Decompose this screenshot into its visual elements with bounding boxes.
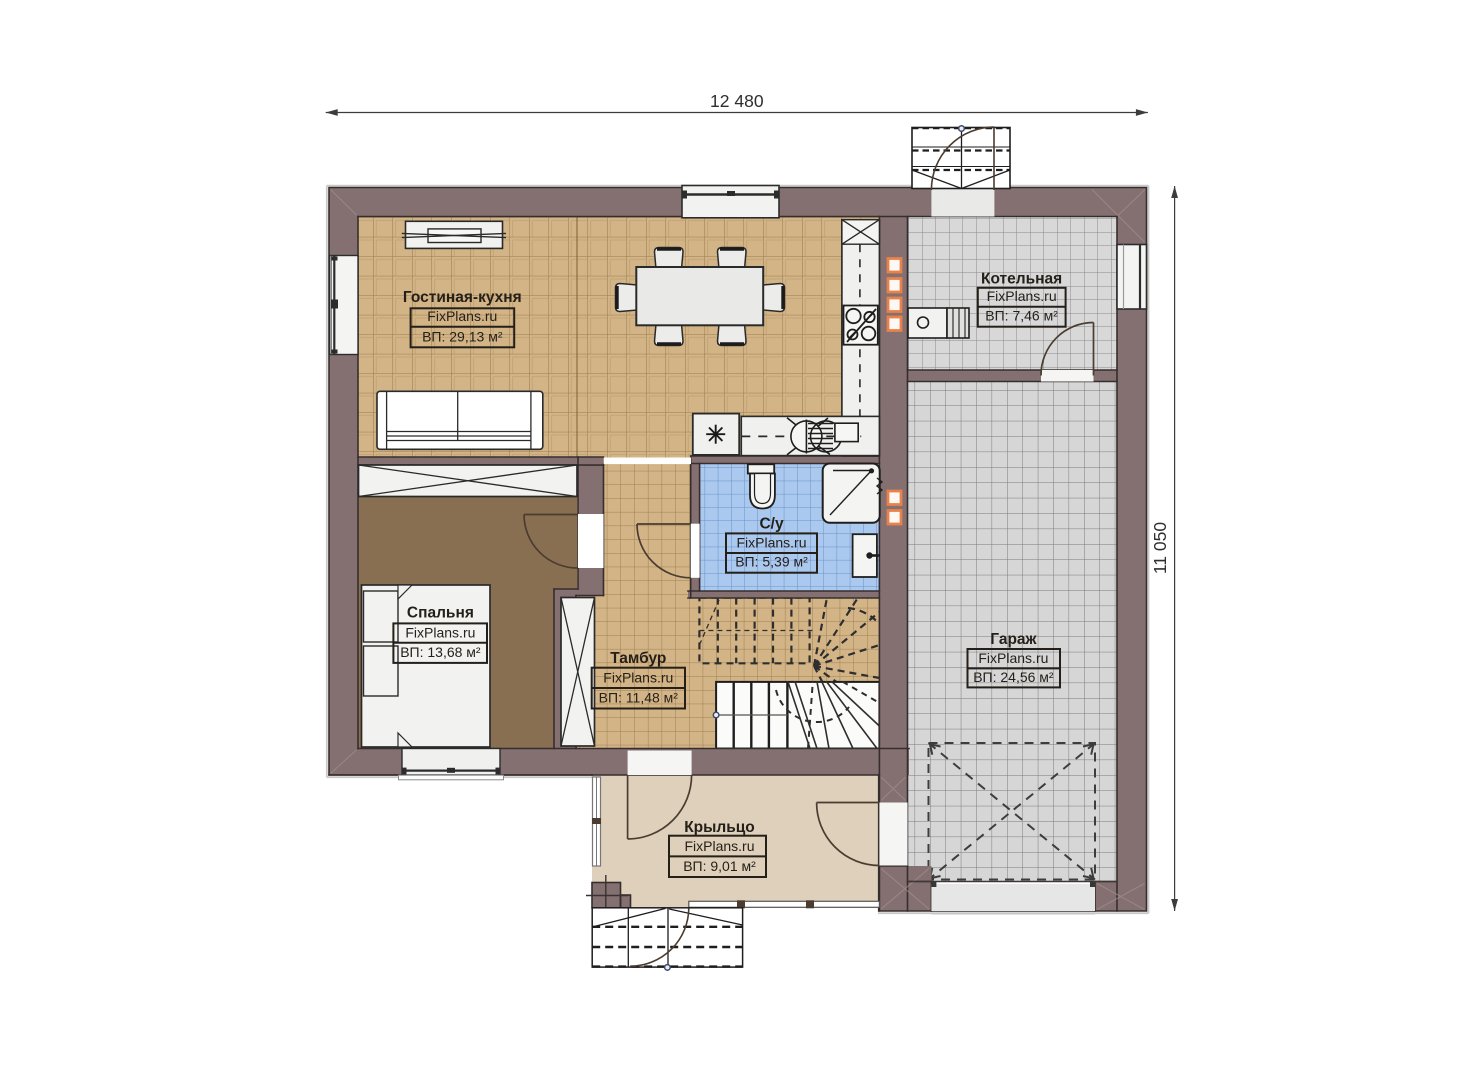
svg-text:ВП: 5,39 м²: ВП: 5,39 м² [735,554,808,570]
svg-text:ВП: 9,01 м²: ВП: 9,01 м² [683,858,756,874]
svg-text:FixPlans.ru: FixPlans.ru [736,535,806,551]
svg-text:Гостиная-кухня: Гостиная-кухня [403,289,522,306]
svg-text:11 050: 11 050 [1150,522,1170,574]
svg-text:ВП: 13,68 м²: ВП: 13,68 м² [400,644,481,660]
svg-text:FixPlans.ru: FixPlans.ru [978,650,1048,666]
svg-text:Крыльцо: Крыльцо [684,819,755,836]
svg-text:ВП: 29,13 м²: ВП: 29,13 м² [422,328,503,344]
svg-text:FixPlans.ru: FixPlans.ru [987,288,1057,304]
svg-text:Тамбур: Тамбур [610,650,666,667]
svg-text:FixPlans.ru: FixPlans.ru [684,838,754,854]
svg-text:ВП: 11,48 м²: ВП: 11,48 м² [599,690,679,706]
svg-text:Котельная: Котельная [981,271,1062,288]
svg-text:Спальня: Спальня [407,605,474,622]
svg-text:FixPlans.ru: FixPlans.ru [405,624,475,640]
svg-text:ВП: 7,46 м²: ВП: 7,46 м² [985,308,1058,324]
svg-text:ВП: 24,56 м²: ВП: 24,56 м² [973,669,1054,685]
svg-text:Гараж: Гараж [990,631,1037,648]
svg-text:12 480: 12 480 [710,91,764,111]
svg-text:FixPlans.ru: FixPlans.ru [603,670,673,686]
svg-text:FixPlans.ru: FixPlans.ru [427,308,497,324]
svg-text:С/у: С/у [759,516,784,533]
